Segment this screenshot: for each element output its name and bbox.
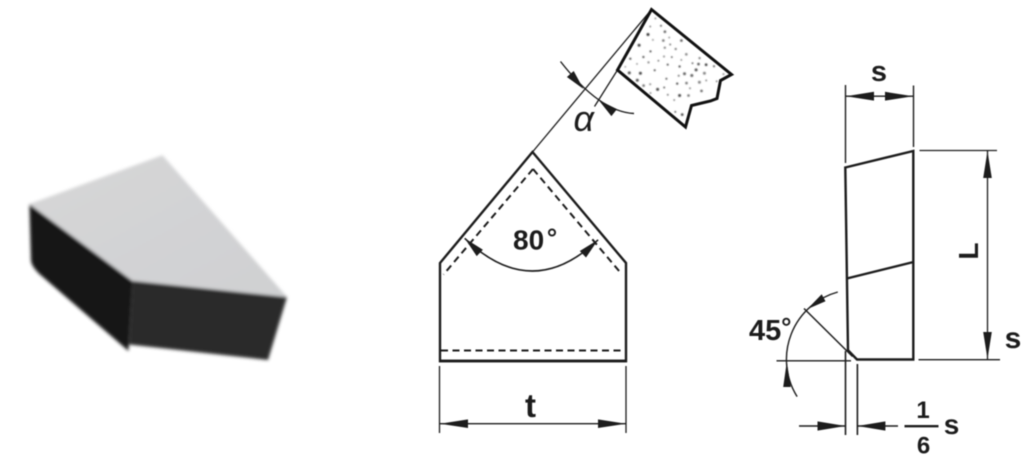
svg-text:s: s xyxy=(871,56,887,88)
svg-text:s: s xyxy=(944,409,960,440)
svg-text:L: L xyxy=(953,242,984,259)
svg-text:80: 80 xyxy=(513,225,544,256)
svg-text:α: α xyxy=(574,98,596,139)
svg-text:45: 45 xyxy=(749,315,781,347)
svg-text:1: 1 xyxy=(916,397,929,424)
svg-text:6: 6 xyxy=(917,433,930,460)
svg-text:s: s xyxy=(1005,322,1022,355)
svg-text:t: t xyxy=(525,387,536,424)
